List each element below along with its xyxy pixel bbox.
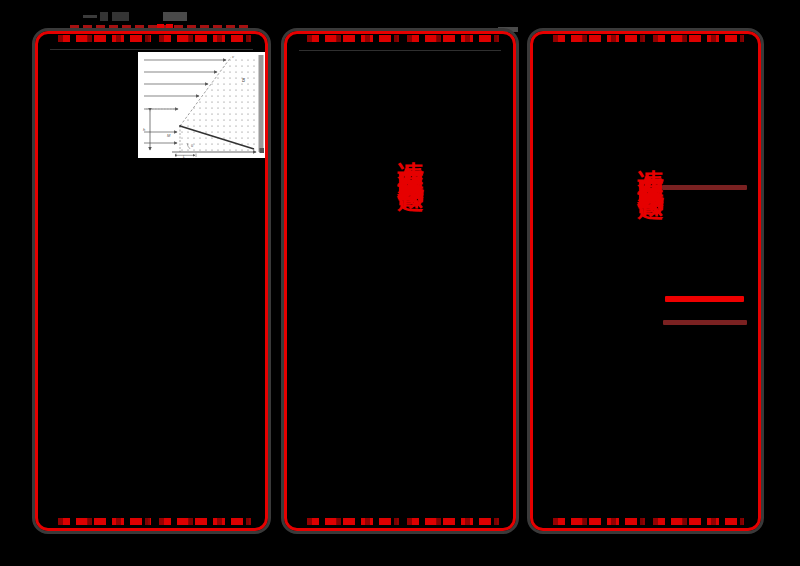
do-not-answer-warning: 请勿在此区域内答题 [398,141,424,168]
scan-edge-block [260,148,265,153]
timing-marks-segment [307,518,399,525]
do-not-answer-warning: 请勿在此区域内答题 [638,149,664,176]
timing-marks-segment [58,35,151,42]
answer-underline-dark [663,320,747,325]
scan-edge-strip [259,55,264,152]
timing-marks-segment [159,35,252,42]
timing-marks-segment [307,35,399,42]
base-label: L [183,155,185,158]
physics-diagram: B h θ M L v [138,52,265,158]
timing-marks-segment [407,518,499,525]
timing-marks-bottom [307,518,499,525]
faint-rule [299,50,501,51]
timing-marks-top [58,35,251,42]
scan-mark-black [100,12,108,21]
timing-marks-segment [653,518,745,525]
timing-marks-segment [407,35,499,42]
timing-marks-top [553,35,744,42]
answer-panel-right: 请勿在此区域内答题 [530,31,761,531]
answer-underline-bright [665,296,744,302]
answer-underline-dark [662,185,747,190]
timing-marks-bottom [58,518,251,525]
timing-marks-bottom [553,518,744,525]
scan-mark-gray [163,12,187,21]
faint-rule [50,49,253,50]
timing-marks-segment [653,35,745,42]
scan-mark-black [112,12,129,21]
vertex-point [179,125,181,127]
timing-marks-segment [553,35,645,42]
timing-marks-segment [553,518,645,525]
field-label: B [242,78,245,83]
timing-marks-segment [58,518,151,525]
scanned-answer-sheet-page: B h θ M L v 请勿在此区域内答题 请勿在此区域内答题 [0,0,800,566]
scan-mark-black [83,15,97,18]
answer-panel-middle: 请勿在此区域内答题 [284,31,516,531]
answer-panel-left: B h θ M L v [35,31,268,531]
timing-marks-top [307,35,499,42]
timing-marks-segment [159,518,252,525]
